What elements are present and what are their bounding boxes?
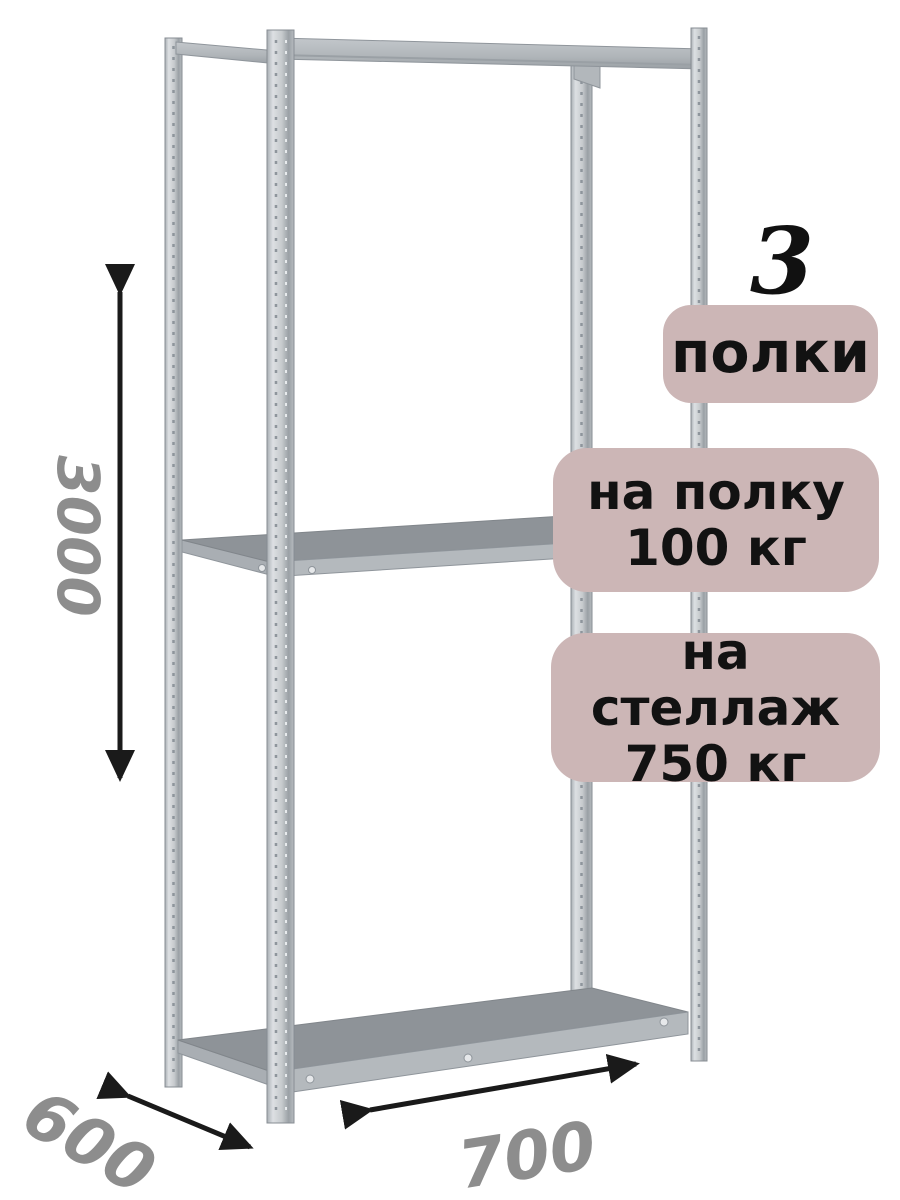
bottom-shelf [178, 988, 688, 1095]
rack-left-side-beam [176, 42, 278, 64]
rack-front-left-post [267, 30, 294, 1123]
per-shelf-load-line1: на полку [587, 464, 845, 520]
per-shelf-load-line2: 100 кг [625, 520, 807, 576]
per-rack-load-line2: 750 кг [625, 736, 807, 792]
height-dimension-label: 3000 [44, 436, 112, 636]
shelf-count-badge-label: полки [671, 322, 870, 386]
product-image: 3 полки на полку 100 кг на стеллаж 750 к… [0, 0, 900, 1200]
rack-back-left-post [165, 38, 182, 1087]
shelf-count-badge: полки [663, 305, 878, 403]
rack-top-front-beam [278, 38, 703, 69]
shelf-count-number: 3 [742, 215, 822, 307]
shelving-rack-illustration [0, 0, 900, 1200]
per-rack-load-badge: на стеллаж 750 кг [551, 633, 880, 782]
per-rack-load-line1: на стеллаж [551, 624, 880, 736]
per-shelf-load-badge: на полку 100 кг [553, 448, 879, 592]
